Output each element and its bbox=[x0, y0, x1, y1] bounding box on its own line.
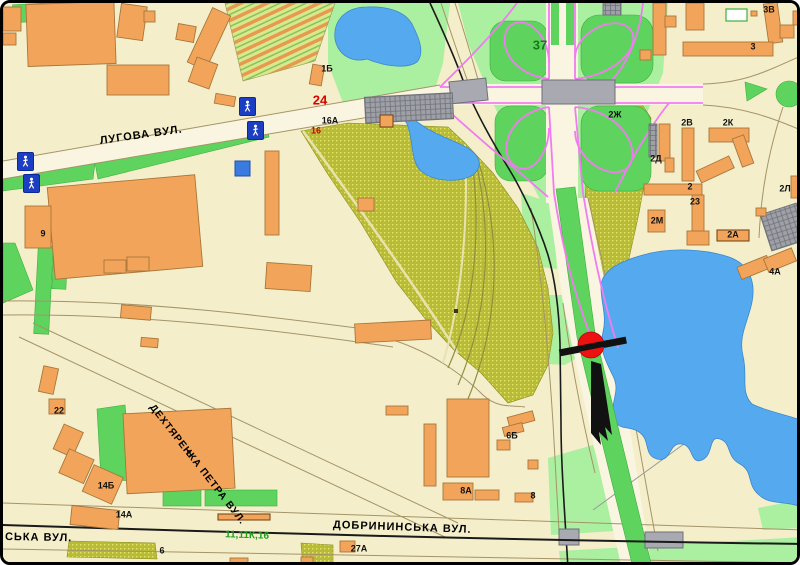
highway-median bbox=[566, 3, 574, 45]
blue-kiosk bbox=[235, 161, 250, 176]
small-structure bbox=[454, 309, 458, 313]
map-drawing bbox=[3, 3, 800, 565]
map-canvas[interactable]: ЛУГОВА ВУЛ.ДЕХТЯРЕНКА ПЕТРА ВУЛ.ДОБРИНИН… bbox=[0, 0, 800, 565]
highway-median bbox=[551, 3, 559, 45]
building-outlined bbox=[726, 9, 747, 21]
